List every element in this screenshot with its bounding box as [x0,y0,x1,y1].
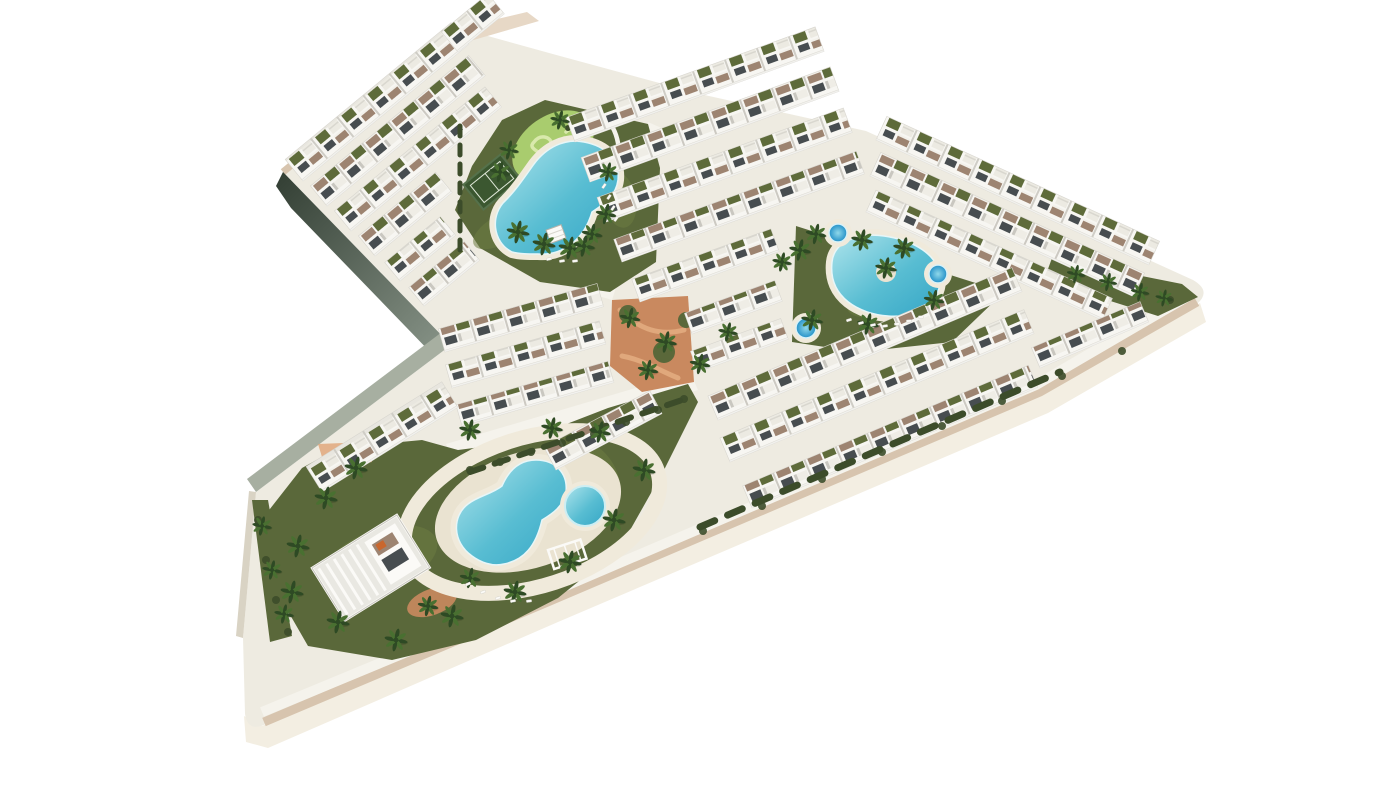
bush [938,422,946,430]
site-plan-svg [0,0,1400,788]
bush [654,406,662,414]
bush [680,395,688,403]
bush [818,475,826,483]
bush [272,596,280,604]
sun-lounger [906,320,911,323]
bush [558,439,566,447]
kids-pool [565,486,605,526]
bush [284,628,292,636]
bush [466,466,474,474]
aerial-site-render [0,0,1400,788]
bush [998,397,1006,405]
sun-lounger [894,323,899,326]
bush [878,448,886,456]
bush [527,448,535,456]
spa-pool [829,224,847,242]
bush [1118,347,1126,355]
sun-lounger [526,599,531,602]
spa-pool [929,265,947,283]
bush [699,527,707,535]
bush [1058,372,1066,380]
bush [496,458,504,466]
sun-lounger [918,316,923,319]
bush [622,418,630,426]
bush [758,502,766,510]
sun-lounger [572,259,577,262]
